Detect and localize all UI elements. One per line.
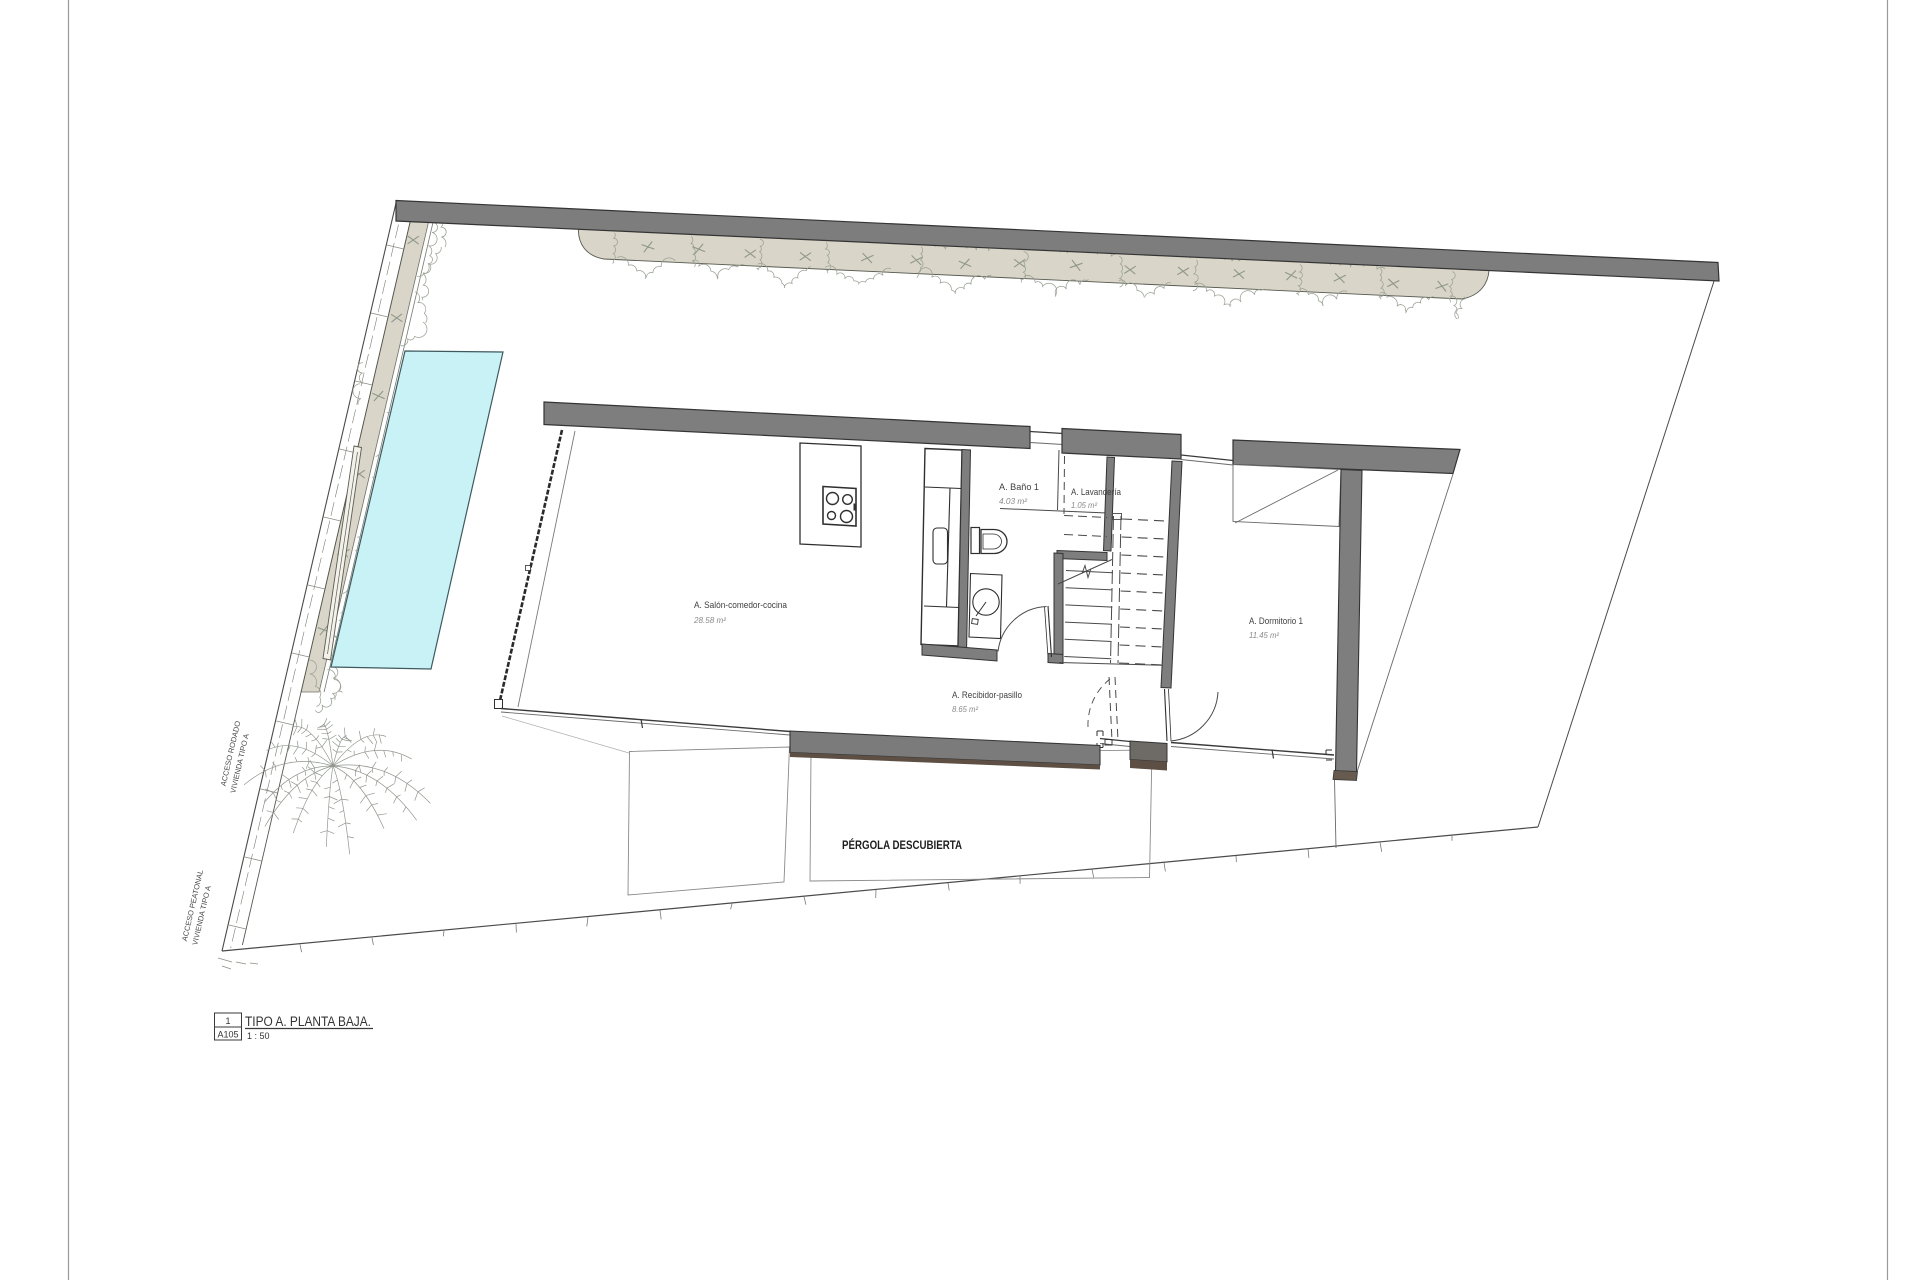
svg-text:28.58 m²: 28.58 m²	[693, 616, 726, 625]
svg-text:A. Recibidor-pasillo: A. Recibidor-pasillo	[952, 690, 1022, 701]
svg-text:8.65 m²: 8.65 m²	[952, 705, 978, 714]
svg-text:A105: A105	[217, 1030, 238, 1040]
svg-text:1 : 50: 1 : 50	[247, 1031, 270, 1041]
svg-text:1.05 m²: 1.05 m²	[1071, 501, 1097, 510]
svg-text:A. Salón-comedor-cocina: A. Salón-comedor-cocina	[694, 600, 788, 611]
svg-text:11.45 m²: 11.45 m²	[1249, 631, 1279, 640]
svg-text:A. Baño 1: A. Baño 1	[999, 482, 1039, 493]
svg-text:A. Dormitorio 1: A. Dormitorio 1	[1249, 616, 1303, 627]
svg-text:TIPO A. PLANTA BAJA.: TIPO A. PLANTA BAJA.	[245, 1014, 371, 1029]
svg-text:4.03 m²: 4.03 m²	[999, 497, 1027, 506]
svg-text:A. Lavandería: A. Lavandería	[1071, 487, 1122, 498]
svg-text:PÉRGOLA DESCUBIERTA: PÉRGOLA DESCUBIERTA	[842, 837, 962, 852]
svg-text:1: 1	[225, 1016, 230, 1026]
